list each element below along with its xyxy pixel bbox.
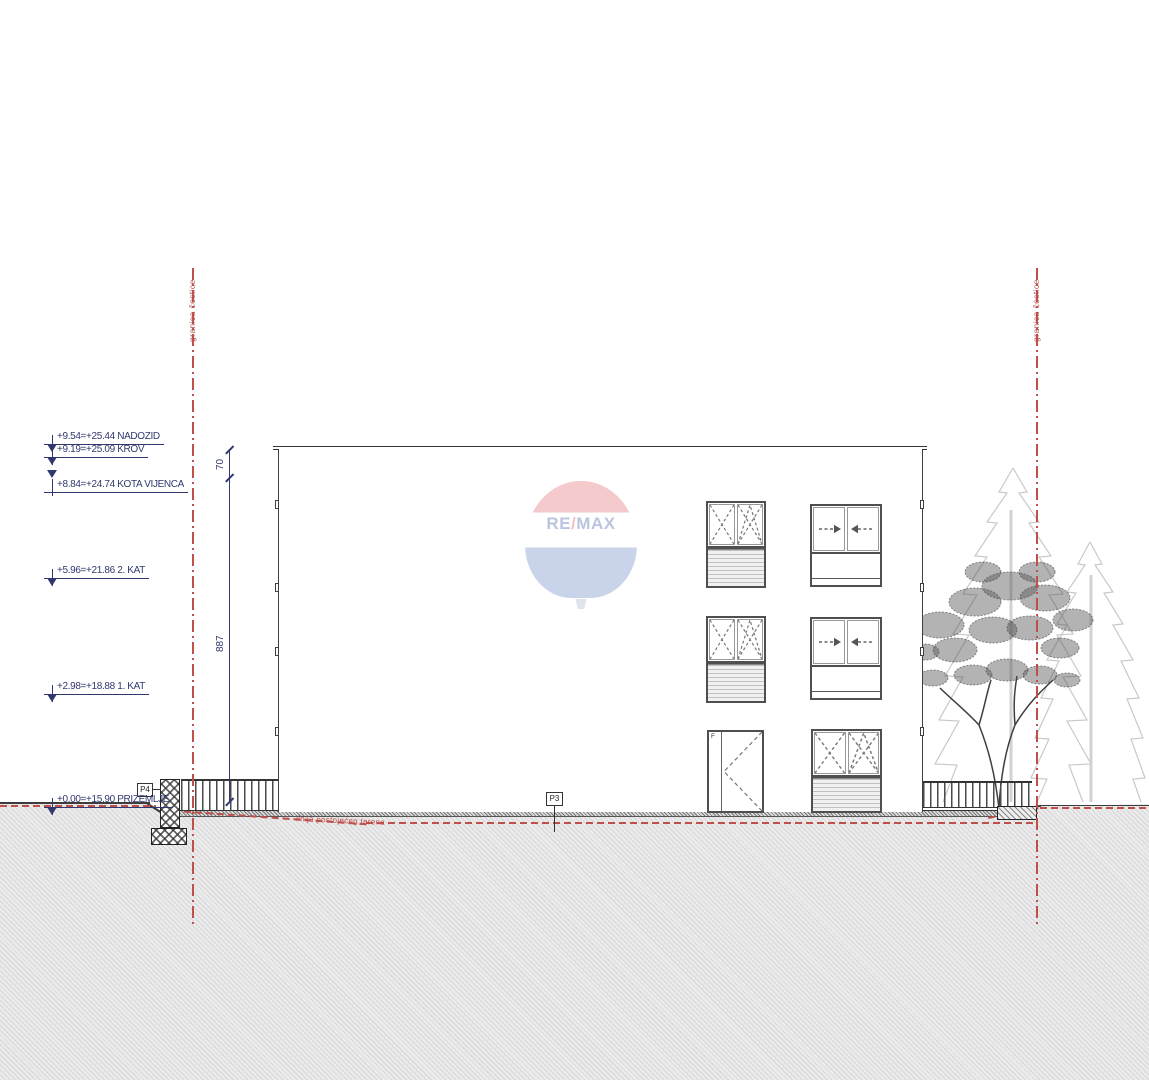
slab-tick — [920, 647, 924, 656]
elevation-tick — [52, 448, 53, 465]
window-casement-prizemlje — [811, 729, 882, 813]
elevation-marker-nadozid: +9.54=+25.44 NADOZID — [44, 431, 164, 445]
elevation-marker-text: +9.54=+25.44 NADOZID — [57, 431, 160, 442]
parcel-boundary-line-left — [192, 268, 194, 926]
door-sidelight — [709, 732, 722, 811]
window-panel-louver — [708, 664, 764, 701]
railing-footing-right — [997, 806, 1037, 820]
remax-logo-text: RE/MAX — [522, 514, 640, 534]
remax-balloon-icon — [525, 481, 637, 598]
entrance-door: F — [707, 730, 764, 813]
casement-pane-right — [737, 504, 763, 545]
window-casement-1kat — [706, 616, 766, 703]
slider-pane-right — [847, 620, 879, 664]
slider-pane-left — [813, 620, 845, 664]
remax-re: RE — [546, 514, 571, 533]
elevation-marker-text: +8.84=+24.74 KOTA VIJENCA — [57, 479, 184, 490]
trees-sketch — [895, 430, 1149, 820]
elevation-marker-1kat: +2.98=+18.88 1. KAT — [44, 681, 149, 695]
slider-lower-panel — [812, 554, 880, 585]
window-panel-louver — [708, 549, 764, 586]
elevation-arrow-icon — [47, 470, 57, 478]
parcel-boundary-label-right: granica čestice — [1031, 270, 1043, 342]
remax-max: MAX — [576, 514, 615, 533]
existing-terrain-line-center — [366, 822, 1037, 824]
window-slider-1kat — [810, 617, 882, 700]
casement-pane-left — [709, 619, 735, 660]
casement-pane-left — [709, 504, 735, 545]
elevation-marker-text: +2.98=+18.88 1. KAT — [57, 681, 145, 692]
door-label: F — [711, 733, 715, 740]
p4-leader-line — [153, 789, 161, 790]
dimension-value-facade: 887 — [215, 626, 229, 662]
casement-pane-right — [737, 619, 763, 660]
door-leaf — [722, 732, 762, 811]
balloon-basket-icon — [573, 599, 589, 609]
slab-tick — [920, 583, 924, 592]
pier-footing-left — [151, 828, 187, 845]
elevation-marker-2kat: +5.96=+21.86 2. KAT — [44, 565, 149, 579]
elevation-marker-krov: +9.19=+25.09 KROV — [44, 444, 148, 458]
elevation-tick — [52, 479, 53, 496]
elevation-marker-text: +5.96=+21.86 2. KAT — [57, 565, 145, 576]
elevation-marker-vijenac: +8.84=+24.74 KOTA VIJENCA — [44, 479, 188, 493]
dimension-value-parapet: 70 — [215, 451, 229, 477]
railing-right — [923, 781, 1032, 808]
elevation-tick — [52, 685, 53, 702]
elevation-tick — [52, 569, 53, 586]
elevation-marker-text: +9.19=+25.09 KROV — [57, 444, 144, 455]
elevation-marker-text: +0.00=+15.90 PRIZEMLJE — [57, 794, 169, 805]
elevation-tick — [52, 798, 53, 815]
window-slider-2kat — [810, 504, 882, 587]
slab-tick — [275, 583, 279, 592]
slab-tick — [920, 500, 924, 509]
slab-tick — [920, 727, 924, 736]
casement-pane-right — [848, 732, 880, 774]
slider-lower-panel — [812, 667, 880, 698]
slab-tick — [275, 500, 279, 509]
parcel-boundary-label-left: granica čestice — [187, 270, 199, 342]
slider-pane-right — [847, 507, 879, 551]
slab-tick — [275, 647, 279, 656]
p3-leader-line — [554, 806, 555, 832]
slab-tick — [275, 727, 279, 736]
casement-pane-left — [814, 732, 846, 774]
elevation-drawing-canvas: linija postojećeg terena — [0, 0, 1149, 1080]
window-panel-louver — [813, 778, 880, 811]
elevation-marker-prizemlje: +0.00=+15.90 PRIZEMLJE — [44, 794, 173, 808]
parcel-boundary-line-right — [1036, 268, 1038, 926]
slider-pane-left — [813, 507, 845, 551]
dimension-line — [229, 450, 230, 803]
remax-watermark: RE/MAX — [522, 481, 640, 613]
p3-label: P3 — [546, 792, 563, 806]
window-casement-2kat — [706, 501, 766, 588]
